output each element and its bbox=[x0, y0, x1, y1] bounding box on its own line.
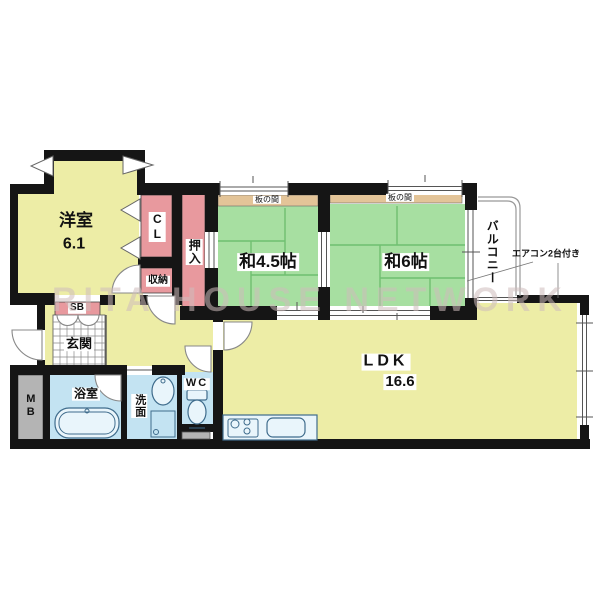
label-japanese-room-6: 和6帖 bbox=[382, 253, 429, 271]
label-japanese-room-45: 和4.5帖 bbox=[237, 253, 299, 271]
watermark: RITA HOUSE NETWORK bbox=[52, 281, 569, 320]
label-entrance: 玄関 bbox=[64, 337, 94, 351]
label-toilet: WC bbox=[184, 378, 210, 390]
washroom-entry bbox=[127, 366, 152, 375]
kitchen-counter bbox=[223, 415, 317, 440]
floorplan-image: 洋室 6.1 CL 押入 収納 SB 玄関 MB 浴室 洗面 WC 板の間 板の… bbox=[0, 0, 600, 600]
fusuma-between-rooms bbox=[318, 232, 330, 287]
label-aircon-note: エアコン2台付き bbox=[512, 249, 580, 258]
kitchen-sink bbox=[267, 418, 305, 437]
label-cl: CL bbox=[149, 212, 166, 242]
bathtub bbox=[55, 408, 119, 438]
label-itanoma-right: 板の間 bbox=[386, 194, 414, 202]
label-ldk: LDK bbox=[362, 354, 411, 371]
washbasin bbox=[152, 377, 174, 405]
entrance-door bbox=[12, 330, 42, 360]
label-itanoma-left: 板の間 bbox=[253, 196, 281, 204]
casement-window-left bbox=[31, 156, 53, 176]
fusuma-oshiire bbox=[205, 232, 218, 268]
label-bathroom: 浴室 bbox=[72, 388, 100, 401]
label-western-room: 洋室 bbox=[59, 212, 93, 230]
label-oshiire: 押入 bbox=[186, 239, 203, 265]
label-washroom: 洗面 bbox=[131, 394, 147, 418]
window-ldk-right bbox=[576, 315, 593, 425]
label-western-room-size: 6.1 bbox=[63, 237, 85, 254]
label-ldk-size: 16.6 bbox=[383, 374, 416, 390]
label-balcony: バルコニー bbox=[486, 220, 499, 285]
pipe-space bbox=[182, 432, 210, 439]
label-meter-box: MB bbox=[24, 393, 36, 419]
